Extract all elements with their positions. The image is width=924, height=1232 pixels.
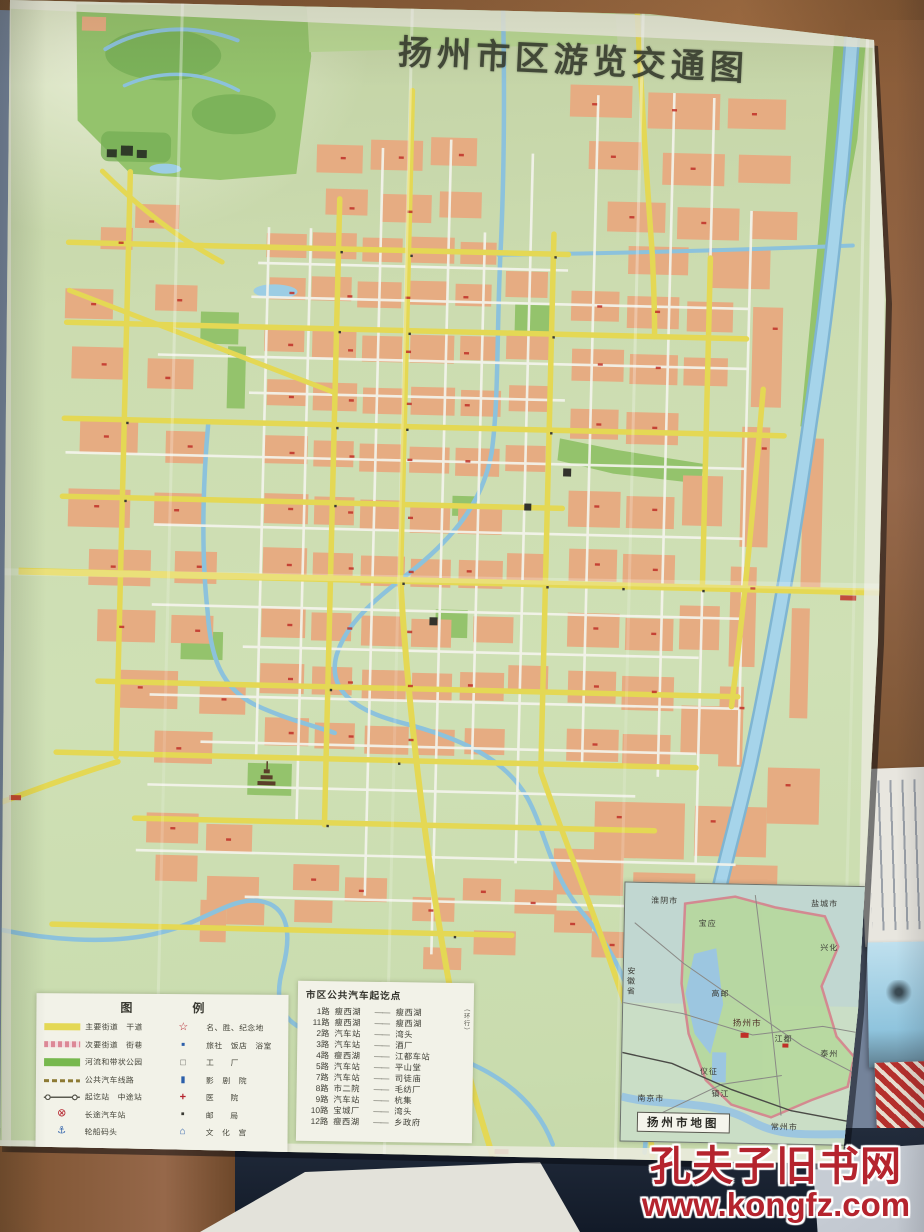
legend-item: 长途汽车站 <box>44 1106 165 1124</box>
route-separator: —— <box>375 1007 396 1017</box>
route-separator: —— <box>373 1106 394 1116</box>
legend-item-label: 轮船码头 <box>85 1127 118 1138</box>
map-sheet: 扬州市区游览交通图 图 例 主要街道 干道 次要街道 街巷 河流和带状公园 公共… <box>0 0 924 1232</box>
watermark-site-url: www.kongfz.com <box>628 1188 924 1222</box>
legend-item-label: 次要街道 街巷 <box>85 1039 142 1050</box>
legend-item: 影 剧 院 <box>165 1072 286 1090</box>
culture-palace-icon <box>165 1127 201 1139</box>
bus-route-row: 12路瘦西湖——乡政府 <box>304 1115 466 1128</box>
route-destination: 乡政府 <box>394 1116 466 1129</box>
legend-box: 图 例 主要街道 干道 次要街道 街巷 河流和带状公园 公共汽车线路 起讫站 中… <box>35 993 288 1154</box>
legend-item-label: 旅社 饭店 浴室 <box>206 1040 272 1051</box>
park-band-swatch <box>44 1058 80 1066</box>
inset-map-graphic <box>621 883 888 1146</box>
legend-item: 起讫站 中途站 <box>44 1088 165 1106</box>
route-separator: —— <box>374 1040 395 1050</box>
star-icon <box>165 1022 201 1034</box>
inset-label: 仪征 <box>700 1066 718 1077</box>
legend-left-column: 主要街道 干道 次要街道 街巷 河流和带状公园 公共汽车线路 起讫站 中途站 长… <box>44 1018 166 1141</box>
legend-item: 河流和带状公园 <box>44 1053 165 1071</box>
route-separator: —— <box>373 1095 394 1105</box>
hospital-cross-icon <box>165 1092 201 1104</box>
bus-line-swatch <box>44 1079 80 1082</box>
route-separator: —— <box>374 1073 395 1083</box>
inset-caption: 扬州市地图 <box>637 1112 730 1134</box>
inset-label: 兴化 <box>820 942 838 953</box>
factory-icon <box>165 1057 201 1069</box>
hotel-icon <box>165 1039 201 1051</box>
legend-item-label: 工 厂 <box>206 1058 239 1069</box>
route-number: 12路 <box>304 1115 328 1127</box>
legend-item: 名、胜、纪念地 <box>165 1019 286 1037</box>
route-separator: —— <box>374 1029 395 1039</box>
route-separator: —— <box>374 1018 395 1028</box>
legend-item-label: 文 化 宫 <box>206 1128 247 1139</box>
route-separator: —— <box>374 1051 395 1061</box>
route-separator: —— <box>373 1117 394 1127</box>
wharf-anchor-icon <box>44 1126 80 1138</box>
photo-of-paper-map: 扬州市区游览交通图 图 例 主要街道 干道 次要街道 街巷 河流和带状公园 公共… <box>0 0 924 1232</box>
watermark-site-name: 孔夫子旧书网 <box>628 1146 924 1188</box>
legend-item-label: 长途汽车站 <box>85 1109 126 1120</box>
inset-label: 盐城市 <box>811 898 838 910</box>
inset-label: 镇江 <box>711 1088 729 1099</box>
inset-label: 常州市 <box>771 1121 798 1133</box>
inset-label: 南京市 <box>637 1093 664 1105</box>
legend-item-label: 影 剧 院 <box>206 1075 247 1086</box>
legend-item: 工 厂 <box>165 1054 286 1072</box>
watermark: 孔夫子旧书网 www.kongfz.com <box>628 1146 924 1221</box>
route-origin: 瘦西湖 <box>333 1115 373 1128</box>
legend-item: 轮船码头 <box>44 1123 165 1141</box>
legend-item-label: 河流和带状公园 <box>85 1057 142 1068</box>
legend-item: 公共汽车线路 <box>44 1071 165 1089</box>
legend-item-label: 邮 局 <box>206 1110 239 1121</box>
legend-title: 图 例 <box>36 998 288 1017</box>
legend-item-label: 公共汽车线路 <box>85 1074 134 1085</box>
legend-right-column: 名、胜、纪念地 旅社 饭店 浴室 工 厂 影 剧 院 医 院 邮 局 文 化 宫 <box>165 1019 287 1142</box>
legend-item: 邮 局 <box>165 1107 286 1125</box>
minor-road-swatch <box>44 1041 80 1047</box>
legend-item: 主要街道 干道 <box>44 1018 165 1036</box>
inset-label: 江都 <box>774 1033 792 1044</box>
legend-item: 医 院 <box>165 1089 286 1107</box>
bus-routes-box: 市区公共汽车起讫点 1路瘦西湖——瘦西湖 11路瘦西湖——瘦西湖 2路汽车站——… <box>296 981 474 1143</box>
legend-item: 旅社 饭店 浴室 <box>165 1037 286 1055</box>
bus-routes-title: 市区公共汽车起讫点 <box>306 987 468 1003</box>
route-separator: —— <box>374 1084 395 1094</box>
inset-label: 泰州 <box>820 1048 838 1059</box>
legend-item-label: 医 院 <box>206 1093 239 1104</box>
post-office-icon <box>165 1109 201 1121</box>
theater-icon <box>165 1074 201 1086</box>
legend-item-label: 名、胜、纪念地 <box>206 1023 263 1034</box>
coach-station-icon <box>44 1108 80 1120</box>
legend-item-label: 主要街道 干道 <box>85 1022 142 1033</box>
inset-label: 宝应 <box>699 918 717 929</box>
legend-item: 文 化 宫 <box>165 1124 286 1142</box>
legend-item: 次要街道 街巷 <box>44 1036 165 1054</box>
legend-item-label: 起讫站 中途站 <box>85 1092 142 1103</box>
major-road-swatch <box>44 1023 80 1030</box>
stops-swatch <box>44 1093 80 1101</box>
inset-label: 安徽省 <box>625 967 637 997</box>
inset-label: 淮阴市 <box>651 895 678 907</box>
inset-label: 扬州市 <box>733 1017 762 1030</box>
stacked-paper-photo <box>867 941 924 1067</box>
route-separator: —— <box>374 1062 395 1072</box>
loop-route-note: （环行） <box>461 1005 470 1035</box>
inset-label: 高邮 <box>711 988 729 999</box>
